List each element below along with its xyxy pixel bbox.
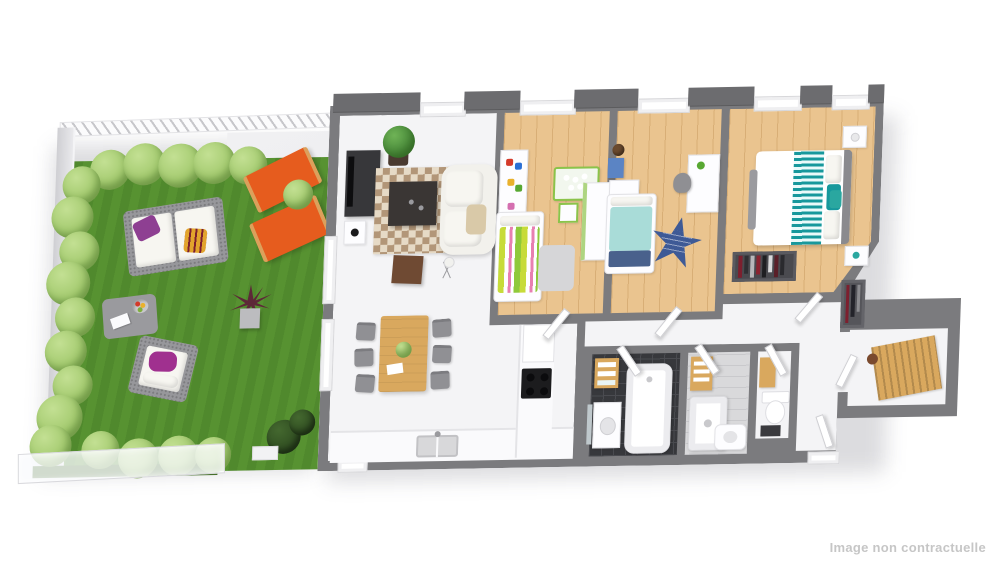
plant-centerpiece — [395, 342, 412, 358]
towel-shelf — [594, 358, 619, 388]
window — [832, 95, 871, 111]
coffee-table — [388, 181, 438, 226]
coat-rack — [840, 280, 866, 328]
nightstand — [844, 246, 869, 266]
dining-chair — [354, 348, 373, 367]
kids-bed-1 — [493, 211, 544, 302]
dining-chair — [430, 370, 449, 389]
window — [420, 102, 467, 118]
cooktop — [521, 368, 552, 399]
desk-plant — [697, 161, 705, 169]
desk-chair — [673, 173, 692, 193]
pillow — [610, 196, 652, 206]
floorplan-render: Image non contractuelle — [0, 0, 1000, 563]
yellow-striped-pillow — [183, 228, 207, 253]
table-lamp — [351, 228, 359, 236]
sofa-seat — [445, 170, 484, 207]
pillow — [500, 215, 540, 226]
wall-segment — [333, 92, 421, 112]
dining-chair — [432, 345, 452, 363]
plant-pot — [239, 308, 260, 328]
dining-table — [378, 315, 429, 392]
wall-segment — [574, 89, 639, 108]
burner — [526, 373, 534, 381]
sofa — [439, 164, 498, 255]
sink-divider — [436, 435, 439, 457]
nightstand — [842, 126, 867, 148]
wc-mat — [760, 425, 780, 436]
white-pillow — [823, 211, 840, 239]
metal-side-table — [343, 220, 366, 244]
bathroom-vanity — [592, 402, 622, 449]
drain — [646, 376, 652, 382]
dining-chair — [432, 318, 452, 338]
wall-segment — [868, 84, 885, 102]
magenta-pillow — [148, 351, 177, 372]
kids-bed-2 — [604, 193, 657, 274]
window — [322, 236, 337, 304]
dining-chair — [355, 374, 376, 393]
white-planter — [252, 446, 278, 460]
window — [319, 319, 335, 391]
throw-blanket — [466, 204, 487, 234]
bathtub — [624, 363, 673, 454]
lamp-head — [443, 257, 454, 268]
white-book — [110, 313, 131, 330]
basin — [599, 417, 616, 435]
scene — [0, 0, 1000, 563]
nightstand-plant — [852, 252, 859, 259]
wall-segment — [464, 91, 521, 110]
shower-drain — [704, 419, 712, 427]
garden-coffee-table — [102, 293, 159, 339]
gray-rug — [538, 245, 576, 292]
teal-cushion — [829, 190, 842, 208]
washbasin — [714, 424, 747, 451]
dining-chair — [356, 322, 377, 341]
watermark-text: Image non contractuelle — [830, 540, 986, 555]
striped-duvet — [498, 226, 540, 293]
kitchen-sink — [416, 435, 459, 458]
hanging-coats — [845, 285, 860, 323]
brown-side-table — [391, 255, 423, 284]
tripod-floor-lamp — [436, 257, 459, 281]
navy-blanket — [608, 250, 651, 267]
white-paper — [386, 363, 403, 375]
window — [638, 98, 691, 114]
wall-cubes — [607, 158, 624, 178]
wall-segment — [688, 87, 755, 106]
tv — [347, 157, 355, 207]
kitchen-tall-cabinet — [515, 324, 556, 458]
window — [754, 96, 803, 112]
window — [520, 100, 577, 116]
desk — [686, 154, 720, 213]
nightstand-lamp — [851, 133, 860, 142]
teal-runner — [791, 150, 824, 245]
front-door — [807, 451, 839, 465]
faucet — [435, 431, 441, 437]
fruit-bowl — [132, 298, 149, 314]
table-decor — [409, 200, 414, 205]
towels — [598, 362, 616, 367]
toys — [506, 159, 513, 166]
kids-chair — [558, 203, 579, 223]
white-pillow — [825, 155, 842, 183]
teal-duvet — [609, 206, 653, 251]
hanging-clothes — [738, 255, 791, 278]
master-bed — [753, 150, 852, 246]
open-closet — [732, 251, 797, 282]
wall-segment — [800, 85, 833, 104]
play-blocks — [563, 175, 569, 181]
basin — [723, 431, 737, 443]
